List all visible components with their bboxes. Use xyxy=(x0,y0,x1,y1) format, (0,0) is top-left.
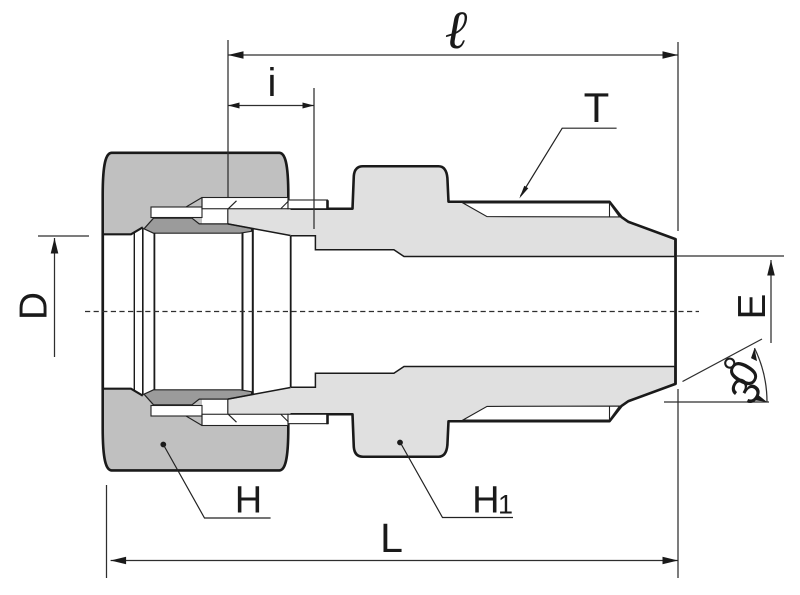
svg-text:T: T xyxy=(584,84,610,131)
svg-text:H: H xyxy=(235,480,262,522)
svg-text:E: E xyxy=(731,294,774,320)
svg-text:1: 1 xyxy=(498,490,513,520)
svg-text:ℓ: ℓ xyxy=(445,0,468,60)
svg-text:D: D xyxy=(13,292,56,320)
svg-text:L: L xyxy=(380,515,403,561)
svg-text:H: H xyxy=(472,480,499,522)
svg-text:i: i xyxy=(268,61,277,105)
